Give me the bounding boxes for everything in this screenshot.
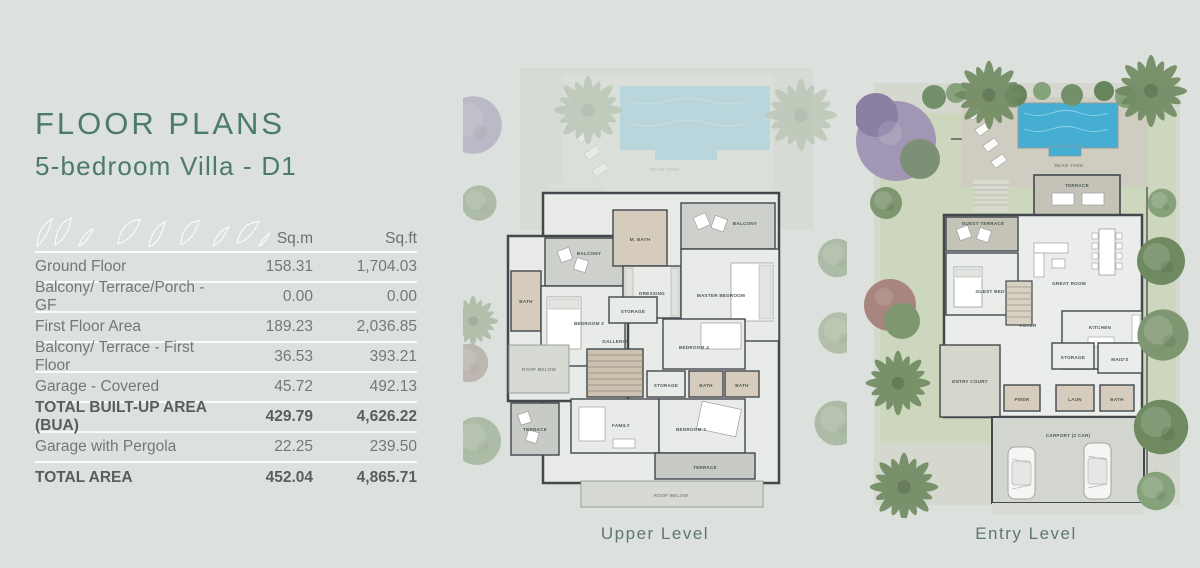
row-sqm: 452.04 bbox=[225, 469, 313, 487]
driveway bbox=[992, 503, 1144, 515]
tree-icon bbox=[1134, 400, 1188, 454]
palm-tree-icon bbox=[463, 296, 498, 346]
car-icon bbox=[1008, 447, 1035, 499]
row-sqft: 1,704.03 bbox=[313, 258, 417, 276]
room-label: M. BATH bbox=[630, 237, 651, 242]
bedroom4-room: BEDROOM 4 bbox=[663, 319, 745, 369]
tree-icon bbox=[1137, 237, 1185, 285]
upper-level-drawing: REAR YARD bbox=[463, 53, 847, 518]
room-label: MASTER BEDROOM bbox=[697, 293, 745, 298]
carport: CARPORT (2 CAR) bbox=[992, 417, 1144, 515]
room-label: REAR YARD bbox=[650, 167, 679, 172]
row-label: Garage - Covered bbox=[35, 378, 225, 396]
room-label: GREAT ROOM bbox=[1052, 281, 1086, 286]
tree-icon bbox=[1137, 472, 1175, 510]
room-label: CARPORT (2 CAR) bbox=[1046, 433, 1091, 438]
leaf-decoration-icon bbox=[35, 217, 270, 247]
tree-icon bbox=[818, 312, 847, 354]
tree-icon bbox=[815, 401, 847, 446]
room-label: REAR YARD bbox=[1054, 163, 1083, 168]
room-label: BATH bbox=[1110, 397, 1124, 402]
ghost-pool bbox=[620, 86, 770, 150]
terrace-left: TERRACE bbox=[511, 403, 559, 455]
room-label: BATH bbox=[519, 299, 533, 304]
row-sqm: 158.31 bbox=[225, 258, 313, 276]
room-label: GUEST TERRACE bbox=[962, 221, 1005, 226]
room-label: BEDROOM 2 bbox=[574, 321, 604, 326]
rear-terrace: TERRACE bbox=[1034, 175, 1120, 215]
guest-terrace: GUEST TERRACE bbox=[946, 217, 1018, 251]
row-sqm: 189.23 bbox=[225, 318, 313, 336]
room-label: TERRACE bbox=[523, 427, 547, 432]
room-label: BATH bbox=[699, 383, 713, 388]
row-sqft: 492.13 bbox=[313, 378, 417, 396]
row-sqft: 2,036.85 bbox=[313, 318, 417, 336]
entry-level-caption: Entry Level bbox=[856, 524, 1196, 544]
column-header-sqft: Sq.ft bbox=[313, 230, 417, 248]
room-label: GUEST BED bbox=[975, 289, 1004, 294]
tree-icon bbox=[463, 185, 497, 220]
room-label: ENTRY COURT bbox=[952, 379, 988, 384]
bedroom3-room: BEDROOM 3 bbox=[659, 399, 745, 453]
room-label: STORAGE bbox=[621, 309, 645, 314]
table-row: Balcony/ Terrace - First Floor 36.53 393… bbox=[35, 343, 417, 373]
interior-stairs bbox=[1006, 281, 1032, 325]
row-label: Balcony/ Terrace/Porch - GF bbox=[35, 279, 225, 315]
row-sqft: 4,865.71 bbox=[313, 469, 417, 487]
room-label: ROOF BELOW bbox=[654, 493, 689, 498]
car-icon bbox=[1084, 443, 1111, 499]
palm-tree-icon bbox=[866, 351, 931, 416]
room-label: MAID'S bbox=[1111, 357, 1128, 362]
row-sqm: 22.25 bbox=[225, 438, 313, 456]
room-label: FAMILY bbox=[612, 423, 630, 428]
table-row-total-area: TOTAL AREA 452.04 4,865.71 bbox=[35, 463, 417, 493]
room-label: STORAGE bbox=[654, 383, 678, 388]
room-label: ROOF BELOW bbox=[522, 367, 557, 372]
room-label: KITCHEN bbox=[1089, 325, 1112, 330]
tree-icon bbox=[818, 239, 847, 277]
tree-icon bbox=[463, 96, 502, 154]
room-label: DRESSING bbox=[639, 291, 665, 296]
info-panel: FLOOR PLANS 5-bedroom Villa - D1 bbox=[35, 108, 417, 179]
row-label: Balcony/ Terrace - First Floor bbox=[35, 339, 225, 375]
pool bbox=[1018, 103, 1118, 148]
page-subtitle: 5-bedroom Villa - D1 bbox=[35, 153, 417, 179]
palm-tree-icon bbox=[554, 76, 622, 144]
upper-building: BALCONY BALCONY BATH M. BATH BEDROOM 2 bbox=[508, 193, 779, 507]
room-label: BATH bbox=[735, 383, 749, 388]
room-label: STORAGE bbox=[1061, 355, 1085, 360]
row-sqm: 429.79 bbox=[225, 408, 313, 426]
entry-level-plan: REAR YARD TERRACE bbox=[856, 53, 1196, 518]
palm-tree-icon bbox=[1115, 55, 1187, 127]
room-label: TERRACE bbox=[1065, 183, 1089, 188]
table-row: Balcony/ Terrace/Porch - GF 0.00 0.00 bbox=[35, 283, 417, 313]
room-label: BEDROOM 4 bbox=[679, 345, 709, 350]
room-label: PWDR bbox=[1014, 397, 1029, 402]
garden-steps bbox=[973, 180, 1009, 212]
area-table: Sq.m Sq.ft Ground Floor 158.31 1,704.03 … bbox=[35, 220, 417, 493]
row-sqft: 4,626.22 bbox=[313, 408, 417, 426]
row-sqm: 36.53 bbox=[225, 348, 313, 366]
entry-court: ENTRY COURT bbox=[940, 345, 1000, 417]
row-sqft: 239.50 bbox=[313, 438, 417, 456]
palm-tree-icon bbox=[765, 79, 837, 151]
row-sqft: 393.21 bbox=[313, 348, 417, 366]
balcony-right: BALCONY bbox=[681, 203, 775, 249]
row-sqm: 45.72 bbox=[225, 378, 313, 396]
family-room: FAMILY bbox=[571, 399, 659, 453]
row-label: Ground Floor bbox=[35, 258, 225, 276]
room-label: TERRACE bbox=[693, 465, 717, 470]
room-label: BALCONY bbox=[733, 221, 757, 226]
row-label: TOTAL BUILT-UP AREA (BUA) bbox=[35, 399, 225, 435]
tree-icon bbox=[1148, 189, 1177, 218]
tree-icon bbox=[463, 344, 488, 382]
room-label: GALLERIA bbox=[602, 339, 628, 344]
tree-icon bbox=[870, 187, 902, 219]
page-title: FLOOR PLANS bbox=[35, 108, 417, 139]
staircase bbox=[587, 349, 643, 397]
room-label: BEDROOM 3 bbox=[676, 427, 706, 432]
row-label: Garage with Pergola bbox=[35, 438, 225, 456]
palm-tree-icon bbox=[955, 61, 1023, 129]
row-label: First Floor Area bbox=[35, 318, 225, 336]
entry-level-drawing: REAR YARD TERRACE bbox=[856, 53, 1196, 518]
row-sqm: 0.00 bbox=[225, 288, 313, 306]
tree-icon bbox=[463, 417, 501, 465]
room-label: LAUN bbox=[1068, 397, 1082, 402]
upper-level-plan: REAR YARD bbox=[463, 53, 847, 518]
upper-level-caption: Upper Level bbox=[463, 524, 847, 544]
entry-building: GUEST TERRACE GREAT ROOM GUES bbox=[940, 215, 1142, 417]
tree-icon bbox=[1137, 309, 1188, 360]
row-sqft: 0.00 bbox=[313, 288, 417, 306]
table-row: Garage with Pergola 22.25 239.50 bbox=[35, 433, 417, 463]
row-label: TOTAL AREA bbox=[35, 469, 225, 487]
table-row-total-bua: TOTAL BUILT-UP AREA (BUA) 429.79 4,626.2… bbox=[35, 403, 417, 433]
floor-plans-page: FLOOR PLANS 5-bedroom Villa - D1 Sq.m bbox=[0, 0, 1200, 568]
table-header: Sq.m Sq.ft bbox=[35, 220, 417, 253]
room-label: BALCONY bbox=[577, 251, 601, 256]
